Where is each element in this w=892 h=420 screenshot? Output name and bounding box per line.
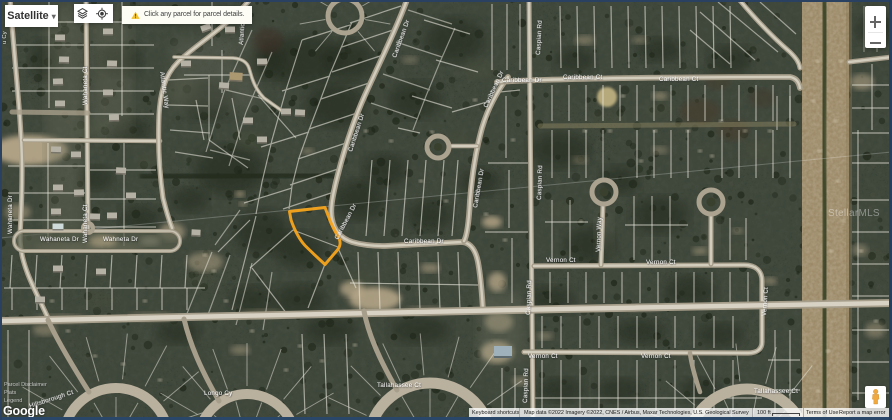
svg-text:Vernon Ct: Vernon Ct	[546, 257, 576, 264]
svg-text:Caspian Rd: Caspian Rd	[536, 165, 544, 200]
svg-text:Wahaneta Dr: Wahaneta Dr	[40, 236, 79, 243]
svg-text:Vernon Ct: Vernon Ct	[646, 259, 676, 266]
svg-text:Wahaneta Ct: Wahaneta Ct	[82, 66, 89, 105]
svg-text:Caribbean Ct: Caribbean Ct	[563, 74, 602, 81]
svg-text:StellarMLS: StellarMLS	[828, 208, 880, 219]
svg-text:Caribbean Ct: Caribbean Ct	[659, 76, 698, 83]
svg-text:Vernon Ct: Vernon Ct	[528, 353, 558, 360]
svg-text:Tallahassee Ct: Tallahassee Ct	[377, 382, 421, 389]
svg-text:Wahaneta Dr: Wahaneta Dr	[7, 195, 14, 234]
svg-text:Caspian Rd: Caspian Rd	[525, 280, 533, 315]
svg-text:Caribbean Dr: Caribbean Dr	[404, 238, 444, 245]
svg-text:Wahaneta Ct: Wahaneta Ct	[82, 204, 89, 243]
svg-text:Vernon Ct: Vernon Ct	[641, 353, 671, 360]
svg-text:Longo Cy: Longo Cy	[204, 390, 233, 397]
svg-text:Parcel Disclaimer: Parcel Disclaimer	[4, 382, 47, 388]
svg-text:u Cy: u Cy	[2, 31, 8, 44]
svg-text:Caspian Rd: Caspian Rd	[522, 368, 530, 403]
svg-text:Wahneta Dr: Wahneta Dr	[103, 236, 138, 243]
svg-text:Caribbean Dr: Caribbean Dr	[502, 77, 542, 84]
svg-text:Plats: Plats	[4, 390, 16, 396]
svg-text:Tallahassee Ct: Tallahassee Ct	[754, 388, 798, 395]
svg-text:Vernon Way: Vernon Way	[596, 217, 603, 252]
